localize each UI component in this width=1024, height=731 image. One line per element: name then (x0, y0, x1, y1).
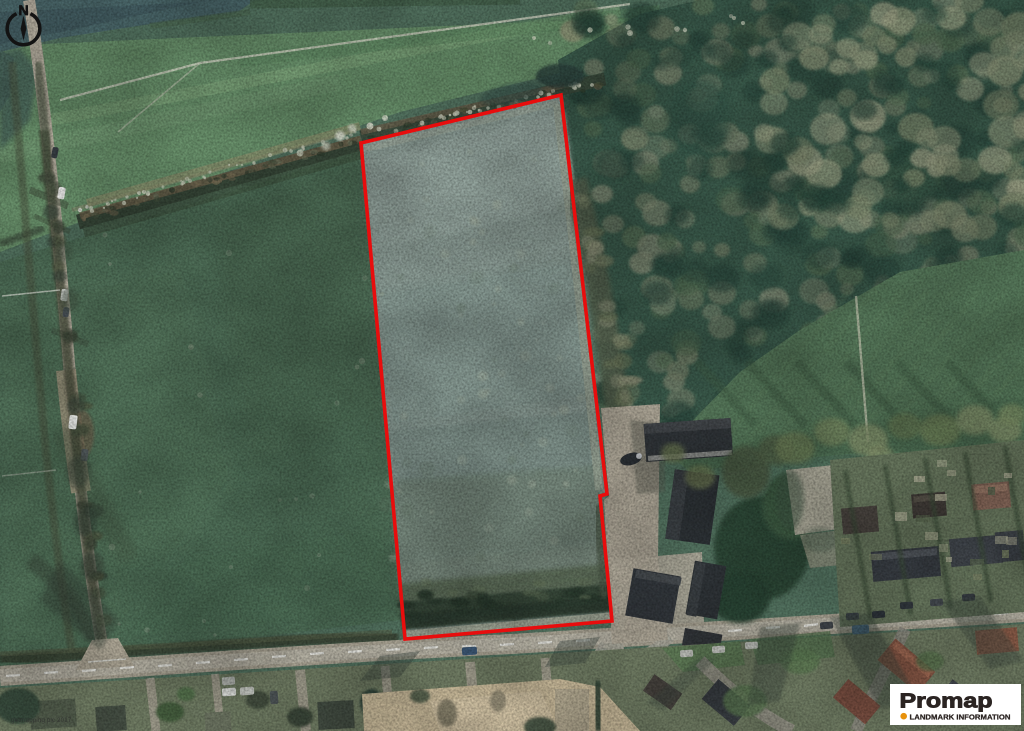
svg-text:Promap: Promap (900, 690, 993, 713)
svg-text:getmapping plc 2017: getmapping plc 2017 (11, 717, 72, 724)
svg-text:LANDMARK INFORMATION: LANDMARK INFORMATION (910, 712, 1011, 721)
svg-text:N: N (19, 2, 29, 18)
